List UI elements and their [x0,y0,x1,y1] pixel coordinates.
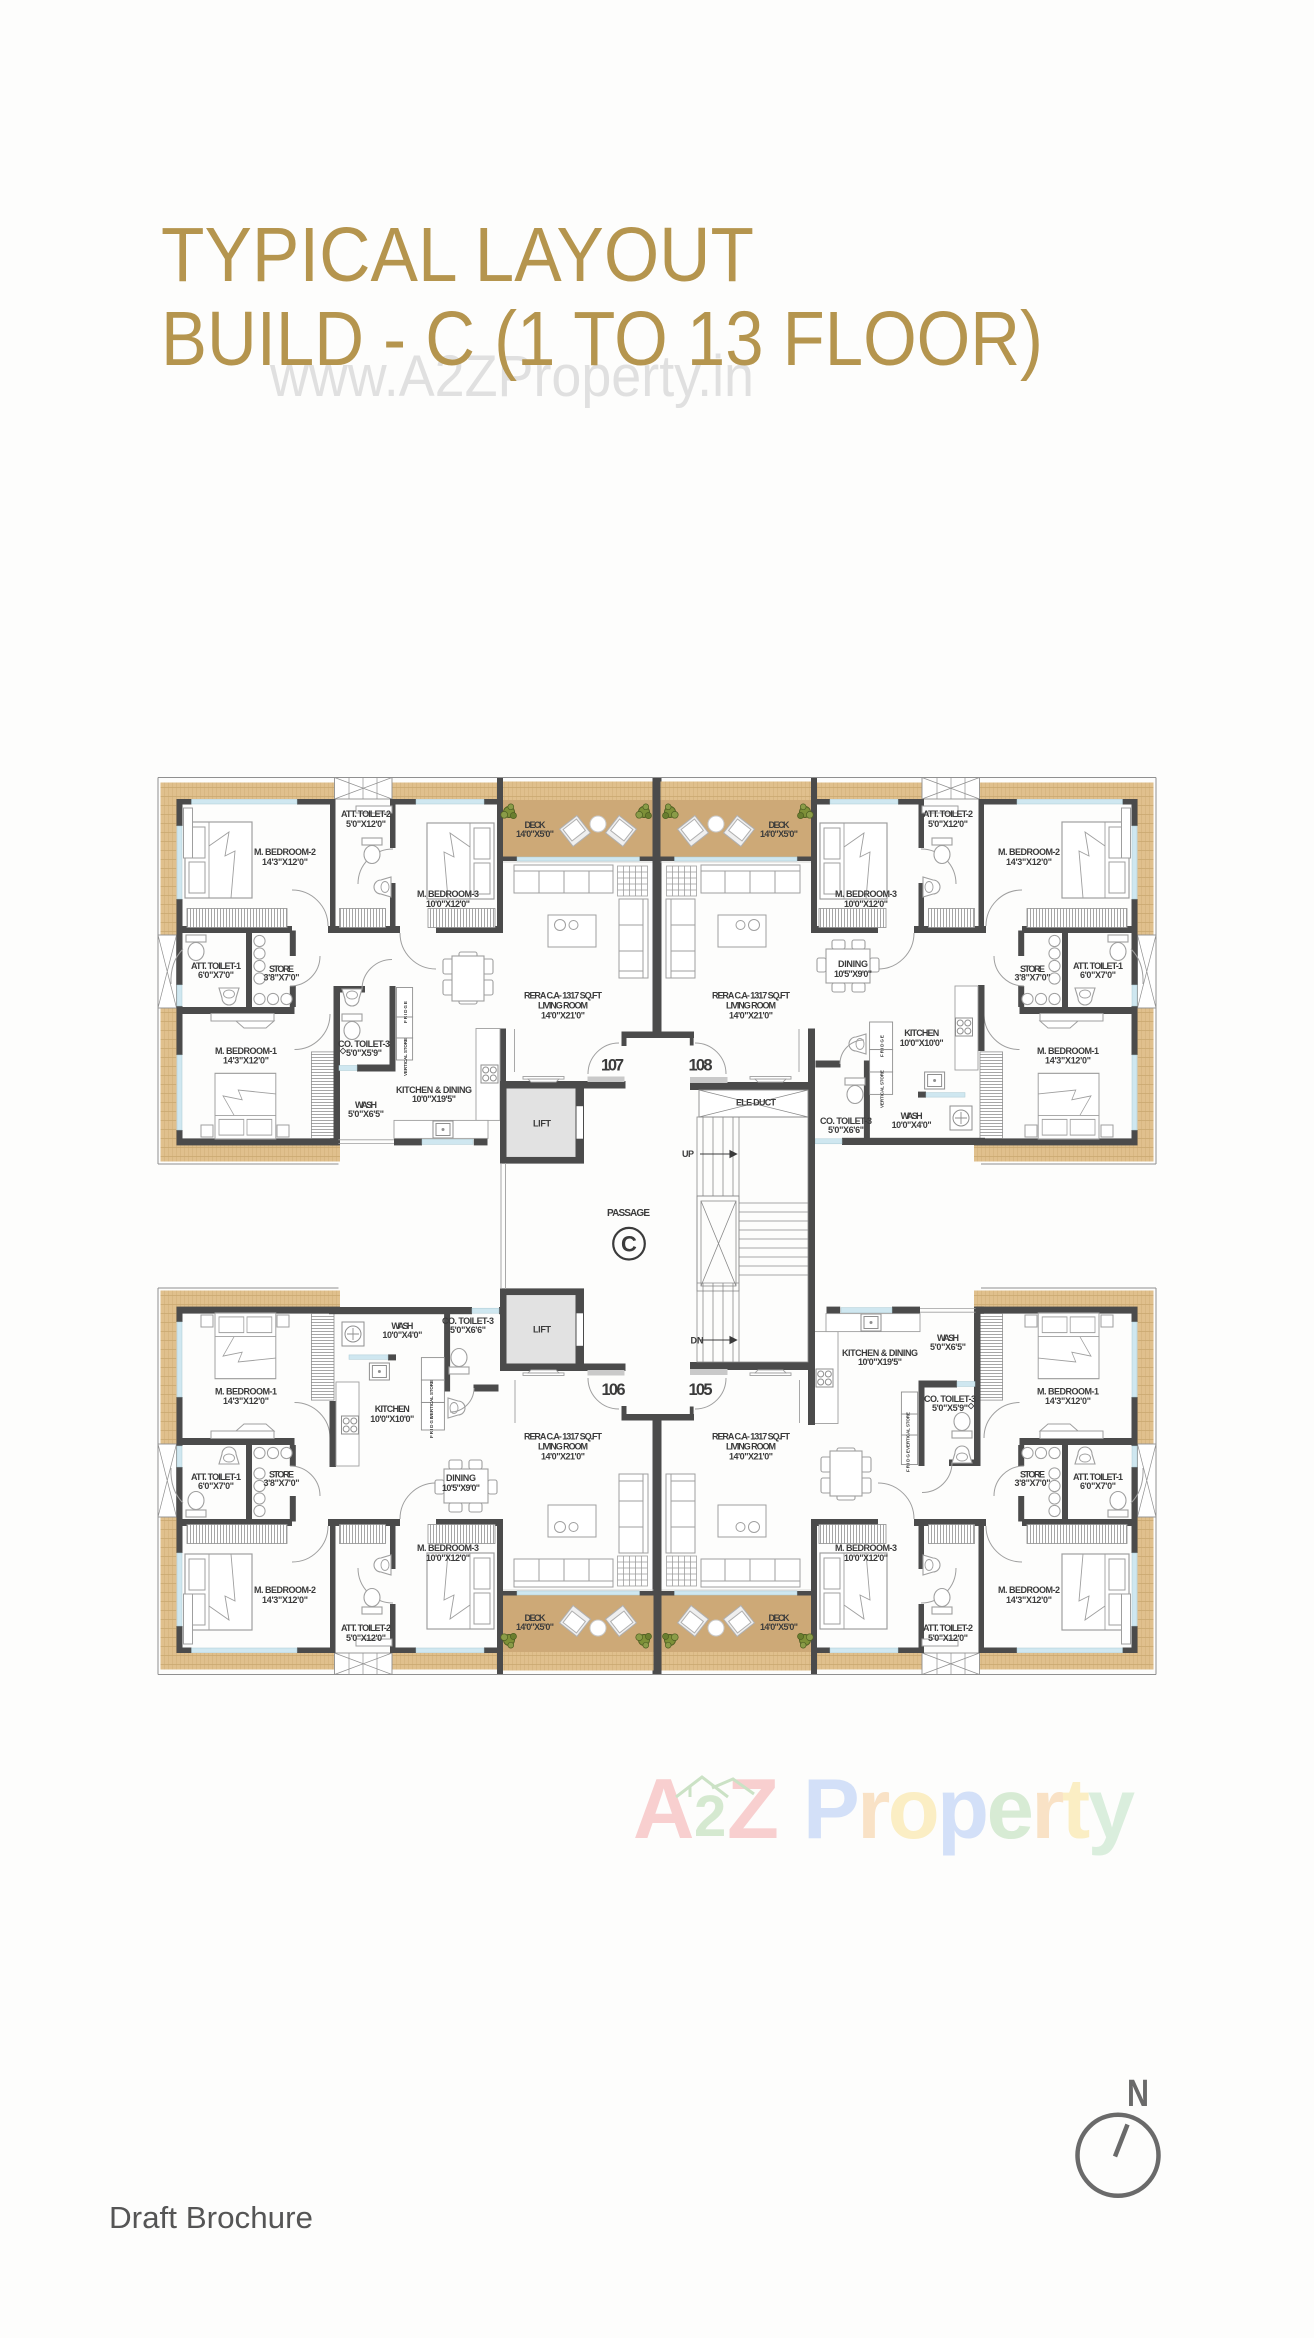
svg-text:DN: DN [691,1336,704,1346]
svg-text:Draft Brochure: Draft Brochure [109,2200,313,2235]
svg-text:BUILD - C (1 TO 13 FLOOR): BUILD - C (1 TO 13 FLOOR) [161,296,1043,382]
svg-text:10'5"X9'0": 10'5"X9'0" [442,1483,480,1493]
svg-text:14'0"X21'0": 14'0"X21'0" [729,1452,773,1462]
svg-text:10'0"X12'0": 10'0"X12'0" [426,899,470,909]
svg-text:5'0"X12'0": 5'0"X12'0" [346,1633,386,1643]
svg-text:RERA C.A- 1317 SQ.FT: RERA C.A- 1317 SQ.FT [712,991,791,1001]
svg-text:6'0"X7'0": 6'0"X7'0" [1080,1481,1116,1491]
svg-text:5'0"X5'9": 5'0"X5'9" [932,1403,968,1413]
svg-text:RERA C.A- 1317 SQ.FT: RERA C.A- 1317 SQ.FT [712,1432,791,1442]
svg-text:14'0"X21'0": 14'0"X21'0" [541,1452,585,1462]
svg-text:106: 106 [602,1381,626,1399]
svg-text:14'3"X12'0": 14'3"X12'0" [1006,1595,1052,1605]
svg-text:M. BEDROOM-3: M. BEDROOM-3 [417,1543,479,1553]
svg-text:LIVING ROOM: LIVING ROOM [726,1442,776,1452]
svg-text:3'8"X7'0": 3'8"X7'0" [264,1478,300,1488]
svg-text:14'0"X21'0": 14'0"X21'0" [729,1011,773,1021]
svg-text:3'8"X7'0": 3'8"X7'0" [264,973,300,983]
svg-text:LIFT: LIFT [533,1119,552,1129]
svg-text:6'0"X7'0": 6'0"X7'0" [198,970,234,980]
svg-text:6'0"X7'0": 6'0"X7'0" [1080,970,1116,980]
svg-text:5'0"X6'5": 5'0"X6'5" [348,1109,384,1119]
svg-text:10'0"X4'0": 10'0"X4'0" [382,1330,422,1340]
svg-text:10'0"X19'5": 10'0"X19'5" [858,1357,902,1367]
svg-text:5'0"X6'5": 5'0"X6'5" [930,1342,966,1352]
svg-text:10'0"X10'0": 10'0"X10'0" [370,1414,414,1424]
svg-text:10'0"X12'0": 10'0"X12'0" [426,1553,470,1563]
svg-text:5'0"X6'6": 5'0"X6'6" [828,1125,864,1135]
svg-text:M. BEDROOM-1: M. BEDROOM-1 [1037,1387,1099,1397]
svg-text:ELE DUCT: ELE DUCT [736,1098,777,1108]
svg-text:Z: Z [727,1762,779,1857]
svg-text:14'3"X12'0": 14'3"X12'0" [262,1595,308,1605]
svg-text:RERA C.A- 1317 SQ.FT: RERA C.A- 1317 SQ.FT [524,991,603,1001]
svg-text:M. BEDROOM-1: M. BEDROOM-1 [1037,1046,1099,1056]
svg-text:10'0"X12'0": 10'0"X12'0" [844,899,888,909]
svg-text:UP: UP [682,1149,694,1159]
svg-text:14'0"X5'0": 14'0"X5'0" [516,1622,554,1632]
svg-text:5'0"X12'0": 5'0"X12'0" [928,819,968,829]
svg-text:ATT. TOILET-2: ATT. TOILET-2 [341,1623,391,1633]
svg-text:ATT. TOILET-2: ATT. TOILET-2 [923,809,973,819]
svg-text:VERTICAL STORE: VERTICAL STORE [429,1380,434,1418]
svg-text:10'0"X12'0": 10'0"X12'0" [844,1553,888,1563]
svg-text:M. BEDROOM-3: M. BEDROOM-3 [835,889,897,899]
svg-text:3'8"X7'0": 3'8"X7'0" [1015,973,1051,983]
svg-text:FRIDGE: FRIDGE [880,1035,885,1057]
svg-text:M. BEDROOM-1: M. BEDROOM-1 [215,1046,277,1056]
svg-text:ATT. TOILET-2: ATT. TOILET-2 [341,809,391,819]
svg-text:10'5"X9'0": 10'5"X9'0" [834,969,872,979]
svg-text:M. BEDROOM-2: M. BEDROOM-2 [998,847,1060,857]
svg-text:5'0"X6'6": 5'0"X6'6" [450,1325,486,1335]
svg-text:LIVING ROOM: LIVING ROOM [538,1442,588,1452]
svg-text:107: 107 [601,1057,624,1075]
svg-text:10'0"X4'0": 10'0"X4'0" [892,1120,932,1130]
svg-text:FRIDGE: FRIDGE [403,1001,408,1023]
svg-text:TYPICAL LAYOUT: TYPICAL LAYOUT [161,212,754,298]
svg-text:KITCHEN: KITCHEN [375,1404,410,1414]
svg-text:14'0"X5'0": 14'0"X5'0" [516,829,554,839]
svg-text:FRIDGE: FRIDGE [429,1416,434,1438]
svg-text:A: A [633,1762,694,1857]
svg-text:VERTICAL STORE: VERTICAL STORE [906,1412,911,1450]
svg-text:5'0"X5'9": 5'0"X5'9" [346,1048,382,1058]
svg-text:KITCHEN: KITCHEN [904,1028,939,1038]
svg-text:M. BEDROOM-3: M. BEDROOM-3 [417,889,479,899]
svg-text:DINING: DINING [446,1473,476,1483]
svg-text:5'0"X12'0": 5'0"X12'0" [346,819,386,829]
svg-text:M. BEDROOM-3: M. BEDROOM-3 [835,1543,897,1553]
svg-text:6'0"X7'0": 6'0"X7'0" [198,1481,234,1491]
svg-text:5'0"X12'0": 5'0"X12'0" [928,1633,968,1643]
svg-text:14'3"X12'0": 14'3"X12'0" [1045,1056,1091,1066]
svg-text:ATT. TOILET-2: ATT. TOILET-2 [923,1623,973,1633]
svg-text:VERTICAL STORE: VERTICAL STORE [880,1070,885,1108]
svg-text:DINING: DINING [838,959,868,969]
svg-text:C: C [621,1232,637,1257]
svg-text:14'0"X21'0": 14'0"X21'0" [541,1011,585,1021]
svg-text:M. BEDROOM-2: M. BEDROOM-2 [254,847,316,857]
svg-text:14'3"X12'0": 14'3"X12'0" [223,1056,269,1066]
svg-text:M. BEDROOM-2: M. BEDROOM-2 [254,1585,316,1595]
svg-text:RERA C.A- 1317 SQ.FT: RERA C.A- 1317 SQ.FT [524,1432,603,1442]
svg-text:14'3"X12'0": 14'3"X12'0" [223,1396,269,1406]
svg-text:PASSAGE: PASSAGE [607,1208,651,1219]
svg-text:M. BEDROOM-2: M. BEDROOM-2 [998,1585,1060,1595]
svg-text:14'3"X12'0": 14'3"X12'0" [262,857,308,867]
svg-text:Property: Property [803,1762,1135,1857]
svg-text:N: N [1127,2073,1149,2115]
svg-text:14'0"X5'0": 14'0"X5'0" [760,829,798,839]
svg-text:14'3"X12'0": 14'3"X12'0" [1006,857,1052,867]
svg-text:LIVING ROOM: LIVING ROOM [726,1001,776,1011]
svg-text:108: 108 [689,1057,713,1075]
svg-text:10'0"X19'5": 10'0"X19'5" [412,1094,456,1104]
svg-text:LIFT: LIFT [533,1325,552,1335]
svg-text:105: 105 [689,1381,713,1399]
svg-text:M. BEDROOM-1: M. BEDROOM-1 [215,1387,277,1397]
svg-text:14'0"X5'0": 14'0"X5'0" [760,1622,798,1632]
svg-text:3'8"X7'0": 3'8"X7'0" [1015,1478,1051,1488]
svg-text:LIVING ROOM: LIVING ROOM [538,1001,588,1011]
svg-text:10'0"X10'0": 10'0"X10'0" [900,1038,944,1048]
svg-text:FRIDGE: FRIDGE [906,1450,911,1472]
svg-text:14'3"X12'0": 14'3"X12'0" [1045,1396,1091,1406]
svg-text:VERTICAL STORE: VERTICAL STORE [403,1038,408,1076]
